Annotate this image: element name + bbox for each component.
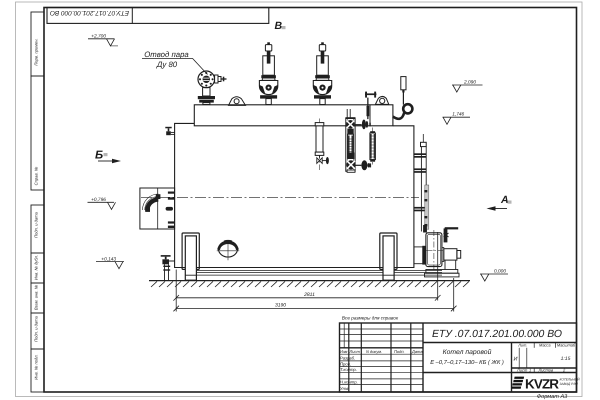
svg-text:Масштаб: Масштаб [557,342,576,347]
svg-text:Масса: Масса [539,342,551,347]
svg-text:В: В [275,20,283,32]
svg-text:Пров.: Пров. [340,361,351,366]
svg-text:Разраб.: Разраб. [340,355,355,360]
svg-text:И: И [514,357,518,363]
svg-text:1: 1 [529,368,531,373]
svg-text:1:15: 1:15 [561,356,571,362]
svg-text:Справ. №: Справ. № [34,166,39,185]
svg-text:Все размеры для справок: Все размеры для справок [342,316,399,321]
svg-text:Подп. и дата: Подп. и дата [34,315,39,341]
svg-text:Т.контр.: Т.контр. [340,367,357,372]
svg-text:Н.контр.: Н.контр. [340,380,358,385]
svg-text:Перв. примен.: Перв. примен. [34,38,39,65]
svg-text:Подп. и дата: Подп. и дата [34,211,39,237]
svg-text:КОТЕЛЬНЫЙ: КОТЕЛЬНЫЙ [560,378,581,382]
svg-text:Взам. инв. №: Взам. инв. № [34,284,39,310]
svg-text:Котел паровой: Котел паровой [443,348,492,356]
svg-text:Дата: Дата [411,349,423,354]
svg-text:Отвод пара: Отвод пара [144,50,189,59]
svg-text:Формат А3: Формат А3 [537,394,568,400]
svg-text:А: А [500,194,509,206]
svg-text:Утв.: Утв. [340,386,350,391]
svg-text:Ду 80: Ду 80 [156,60,178,69]
svg-text:Б: Б [95,149,103,161]
svg-text:KVZR: KVZR [525,377,559,392]
svg-text:Лит.: Лит. [517,342,527,347]
svg-text:Инв. № дубл.: Инв. № дубл. [34,255,39,280]
svg-text:ЕТУ.07.017.201.00.000 ВО: ЕТУ.07.017.201.00.000 ВО [50,9,129,16]
svg-text:Изм: Изм [340,349,348,354]
svg-text:2811: 2811 [303,292,315,298]
svg-text:N докум.: N докум. [366,349,382,354]
svg-text:ЗАВОД РЭП: ЗАВОД РЭП [560,382,579,386]
svg-text:Инв. № подл.: Инв. № подл. [34,354,39,379]
svg-text:Лист: Лист [516,368,528,373]
svg-text:Листов: Листов [538,368,554,373]
svg-text:Лист: Лист [349,349,361,354]
svg-text:Е –0,7–0,17–130– КБ ( ЖК ): Е –0,7–0,17–130– КБ ( ЖК ) [430,359,504,366]
svg-text:ЕТУ .07.017.201.00.000 ВО: ЕТУ .07.017.201.00.000 ВО [432,329,562,340]
svg-text:3190: 3190 [275,303,286,309]
svg-text:Подп.: Подп. [394,349,405,354]
